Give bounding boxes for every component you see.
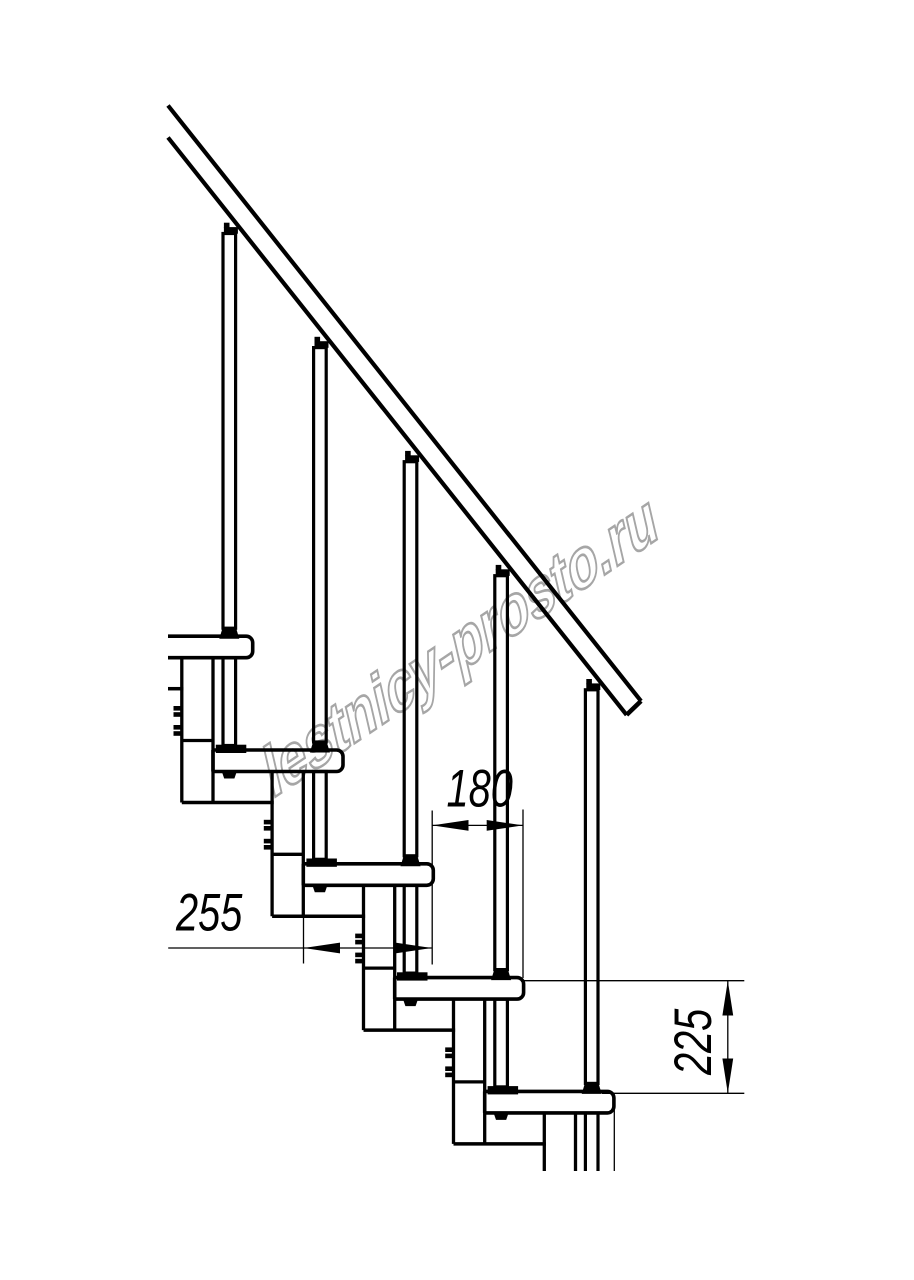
svg-text:255: 255 (175, 883, 243, 942)
svg-text:225: 225 (663, 1008, 722, 1076)
svg-text:180: 180 (447, 759, 513, 818)
